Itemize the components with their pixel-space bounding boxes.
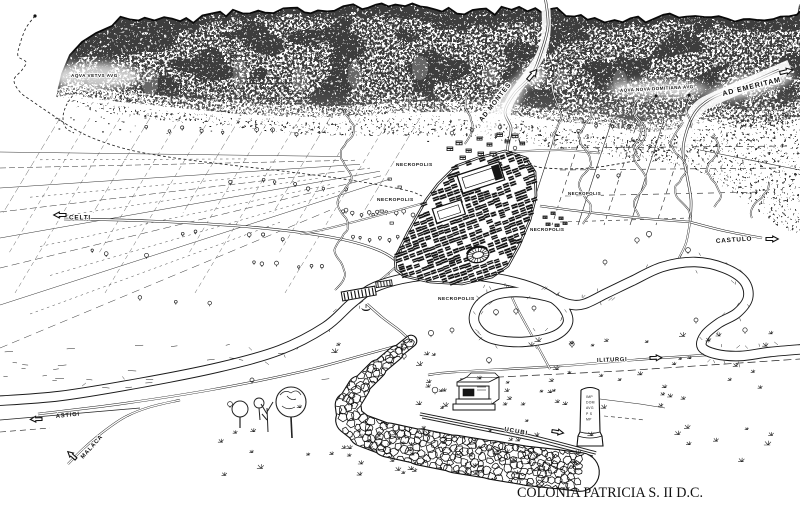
svg-text:AVG: AVG <box>586 406 594 410</box>
svg-text:CELTI: CELTI <box>69 215 91 222</box>
svg-text:NECROPOLIS: NECROPOLIS <box>438 296 475 302</box>
svg-text:ASTIGI: ASTIGI <box>56 412 81 420</box>
svg-text:ILITURGI: ILITURGI <box>597 357 628 364</box>
svg-text:IMP: IMP <box>586 395 593 399</box>
svg-text:NECROPOLIS: NECROPOLIS <box>530 227 564 232</box>
svg-text:AQVA VETVS AVG: AQVA VETVS AVG <box>71 73 118 78</box>
svg-text:NECROPOLIS: NECROPOLIS <box>377 197 414 203</box>
svg-text:MP: MP <box>586 417 592 421</box>
svg-text:NECROPOLIS: NECROPOLIS <box>568 191 601 196</box>
svg-text:CASTULO: CASTULO <box>716 235 753 245</box>
svg-text:NECROPOLIS: NECROPOLIS <box>396 162 433 168</box>
svg-text:DOM: DOM <box>586 401 595 405</box>
svg-text:P S: P S <box>586 412 593 416</box>
svg-text:COLONIA PATRICIA S. II D.C.: COLONIA PATRICIA S. II D.C. <box>517 485 703 501</box>
